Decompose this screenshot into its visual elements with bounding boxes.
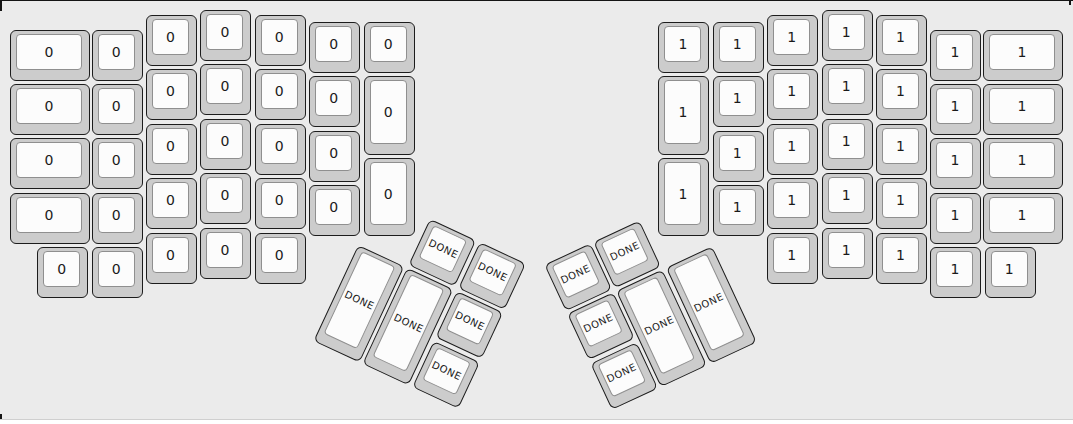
- key-label: DONE: [609, 240, 642, 262]
- key-left-3[interactable]: 0: [10, 138, 90, 189]
- key-left-28[interactable]: 0: [309, 131, 360, 182]
- key-left-19[interactable]: 0: [200, 173, 251, 224]
- keycap-top: 1: [936, 197, 973, 233]
- keycap-top: 0: [315, 135, 352, 171]
- keycap-top: 0: [16, 197, 82, 233]
- key-label: 0: [45, 208, 54, 222]
- key-label: 1: [787, 193, 796, 207]
- frame-corner-bottom-left: [0, 414, 2, 419]
- key-label: 1: [733, 146, 742, 160]
- key-right-20[interactable]: 1: [876, 124, 927, 175]
- key-right-13[interactable]: 1: [822, 10, 873, 61]
- keycap-top: 0: [206, 123, 243, 159]
- key-right-7[interactable]: 1: [713, 185, 764, 236]
- key-right-8[interactable]: 1: [767, 15, 818, 66]
- key-label: 0: [112, 99, 121, 113]
- key-right-15[interactable]: 1: [822, 119, 873, 170]
- keycap-top: 1: [882, 128, 919, 164]
- keycap-top: DONE: [551, 250, 600, 298]
- keycap-top: 1: [664, 162, 701, 225]
- keycap-top: 0: [206, 232, 243, 268]
- keycap-top: 1: [719, 80, 756, 116]
- keycap-top: 1: [989, 197, 1055, 233]
- keycap-top: 1: [989, 88, 1055, 124]
- keycap-top: 1: [936, 88, 973, 124]
- key-label: 0: [112, 153, 121, 167]
- key-left-24[interactable]: 0: [255, 178, 306, 229]
- key-label: 1: [787, 139, 796, 153]
- key-label: 0: [45, 153, 54, 167]
- key-left-25[interactable]: 0: [255, 233, 306, 284]
- key-right-2[interactable]: 1: [658, 76, 709, 154]
- keycap-top: 1: [664, 26, 701, 62]
- key-left-20[interactable]: 0: [200, 228, 251, 279]
- key-label: 1: [842, 243, 851, 257]
- keycap-top: 1: [828, 232, 865, 268]
- keycap-top: 0: [261, 182, 298, 218]
- keycap-top: 1: [936, 251, 973, 287]
- keycap-top: 1: [989, 142, 1055, 178]
- key-label: 0: [45, 99, 54, 113]
- keycap-top: 0: [43, 251, 80, 287]
- key-label: DONE: [582, 313, 615, 335]
- key-label: 0: [220, 188, 229, 202]
- key-left-1[interactable]: 0: [10, 30, 90, 81]
- frame-corner-top-right: [1069, 0, 1071, 5]
- keycap-top: 0: [315, 189, 352, 225]
- key-label: DONE: [692, 291, 725, 313]
- key-left-26[interactable]: 0: [309, 22, 360, 73]
- key-label: DONE: [643, 314, 676, 336]
- keycap-top: 1: [773, 182, 810, 218]
- key-right-12[interactable]: 1: [767, 233, 818, 284]
- keycap-top: 0: [206, 68, 243, 104]
- key-label: 0: [329, 200, 338, 214]
- key-left-4[interactable]: 0: [10, 193, 90, 244]
- keycap-top: 0: [370, 162, 407, 225]
- keycap-top: 0: [152, 73, 189, 109]
- keycap-top: 0: [315, 26, 352, 62]
- key-label: 0: [45, 45, 54, 59]
- key-label: 0: [57, 262, 66, 276]
- keycap-top: 0: [98, 142, 135, 178]
- keycap-top: 0: [98, 197, 135, 233]
- key-label: 0: [384, 187, 393, 201]
- keycap-top: 1: [882, 19, 919, 55]
- keycap-top: 0: [206, 177, 243, 213]
- key-label: 1: [678, 105, 687, 119]
- keycap-top: 1: [719, 189, 756, 225]
- key-right-24[interactable]: 1: [930, 84, 981, 135]
- key-label: 1: [842, 188, 851, 202]
- key-right-30[interactable]: 1: [983, 138, 1063, 189]
- key-label: DONE: [605, 362, 638, 384]
- key-label: 0: [112, 45, 121, 59]
- key-label: DONE: [453, 310, 486, 332]
- key-label: 1: [950, 153, 959, 167]
- keycap-top: DONE: [601, 227, 650, 275]
- key-label: 1: [733, 37, 742, 51]
- key-left-11[interactable]: 0: [146, 15, 197, 66]
- keycap-top: 0: [261, 128, 298, 164]
- keycap-top: 1: [828, 14, 865, 50]
- key-label: 1: [1018, 45, 1027, 59]
- key-left-6[interactable]: 0: [92, 30, 143, 81]
- keycap-top: 1: [773, 128, 810, 164]
- key-right-32[interactable]: 1: [985, 247, 1036, 298]
- keycap-top: 1: [828, 177, 865, 213]
- key-right-17[interactable]: 1: [822, 228, 873, 279]
- key-left-18[interactable]: 0: [200, 119, 251, 170]
- keycap-top: 1: [882, 182, 919, 218]
- keycap-top: 0: [98, 88, 135, 124]
- key-left-12[interactable]: 0: [146, 69, 197, 120]
- key-right-18[interactable]: 1: [876, 15, 927, 66]
- key-left-13[interactable]: 0: [146, 124, 197, 175]
- key-label: 1: [842, 25, 851, 39]
- key-label: 0: [220, 243, 229, 257]
- key-label: 0: [220, 79, 229, 93]
- key-label: 1: [787, 84, 796, 98]
- key-label: 0: [166, 84, 175, 98]
- key-label: 1: [1018, 153, 1027, 167]
- key-left-22[interactable]: 0: [255, 69, 306, 120]
- key-label: 1: [787, 30, 796, 44]
- keycap-top: 1: [882, 73, 919, 109]
- key-left-17[interactable]: 0: [200, 64, 251, 115]
- key-label: 0: [220, 25, 229, 39]
- keycap-top: 0: [16, 142, 82, 178]
- key-label: 1: [896, 84, 905, 98]
- keycap-top: 0: [370, 26, 407, 62]
- key-label: 0: [166, 30, 175, 44]
- keycap-top: 1: [828, 68, 865, 104]
- keycap-top: 1: [936, 34, 973, 70]
- key-left-29[interactable]: 0: [309, 185, 360, 236]
- keycap-top: DONE: [422, 347, 471, 395]
- key-label: 0: [112, 262, 121, 276]
- keycap-top: 1: [664, 80, 701, 143]
- keycap-top: 1: [773, 19, 810, 55]
- keycap-top: DONE: [574, 300, 623, 348]
- key-right-22[interactable]: 1: [876, 233, 927, 284]
- keycap-top: 1: [719, 26, 756, 62]
- key-right-10[interactable]: 1: [767, 124, 818, 175]
- key-label: 0: [329, 91, 338, 105]
- key-label: 1: [733, 91, 742, 105]
- keycap-top: 0: [261, 237, 298, 273]
- key-label: 0: [275, 248, 284, 262]
- key-right-14[interactable]: 1: [822, 64, 873, 115]
- key-right-25[interactable]: 1: [930, 138, 981, 189]
- key-label: 1: [1018, 99, 1027, 113]
- key-label: 1: [896, 139, 905, 153]
- key-label: 1: [896, 248, 905, 262]
- keycap-top: 0: [16, 88, 82, 124]
- key-right-29[interactable]: 1: [983, 84, 1063, 135]
- key-right-31[interactable]: 1: [983, 193, 1063, 244]
- key-label: 0: [275, 30, 284, 44]
- key-label: 1: [896, 193, 905, 207]
- key-left-2[interactable]: 0: [10, 84, 90, 135]
- key-label: 0: [275, 193, 284, 207]
- keycap-top: 0: [315, 80, 352, 116]
- key-label: DONE: [430, 360, 463, 382]
- key-label: 0: [384, 105, 393, 119]
- keycap-top: 0: [98, 34, 135, 70]
- key-right-5[interactable]: 1: [713, 76, 764, 127]
- key-right-26[interactable]: 1: [930, 193, 981, 244]
- key-label: 0: [112, 208, 121, 222]
- key-label: 1: [678, 187, 687, 201]
- key-left-5[interactable]: 0: [37, 247, 88, 298]
- key-label: 1: [1005, 262, 1014, 276]
- key-label: 0: [384, 37, 393, 51]
- key-left-27[interactable]: 0: [309, 76, 360, 127]
- key-label: 1: [678, 37, 687, 51]
- frame-corner-top-left: [0, 0, 2, 11]
- key-right-21[interactable]: 1: [876, 178, 927, 229]
- keycap-top: 0: [98, 251, 135, 287]
- key-label: 1: [950, 208, 959, 222]
- key-left-14[interactable]: 0: [146, 178, 197, 229]
- keyboard-configurator-panel: 0000000000000000000000000000000011111111…: [0, 0, 1073, 420]
- key-right-11[interactable]: 1: [767, 178, 818, 229]
- key-left-30[interactable]: 0: [364, 22, 415, 73]
- keycap-top: 0: [206, 14, 243, 50]
- keycap-top: 1: [828, 123, 865, 159]
- key-label: 0: [275, 139, 284, 153]
- keycap-top: 1: [991, 251, 1028, 287]
- key-right-3[interactable]: 1: [658, 158, 709, 236]
- keycap-top: 0: [370, 80, 407, 143]
- keycap-top: 0: [152, 19, 189, 55]
- key-label: 1: [787, 248, 796, 262]
- key-left-7[interactable]: 0: [92, 84, 143, 135]
- key-label: 1: [950, 262, 959, 276]
- keycap-top: 0: [261, 19, 298, 55]
- key-right-16[interactable]: 1: [822, 173, 873, 224]
- key-label: 1: [733, 200, 742, 214]
- key-label: DONE: [392, 312, 425, 334]
- keycap-top: 0: [261, 73, 298, 109]
- keycap-top: 0: [16, 34, 82, 70]
- keycap-top: DONE: [597, 349, 646, 397]
- key-right-27[interactable]: 1: [930, 247, 981, 298]
- frame-top-border: [0, 0, 1073, 1]
- key-right-9[interactable]: 1: [767, 69, 818, 120]
- key-left-31[interactable]: 0: [364, 76, 415, 154]
- key-right-4[interactable]: 1: [713, 22, 764, 73]
- keycap-top: DONE: [468, 248, 517, 296]
- key-label: 1: [950, 45, 959, 59]
- keycap-top: 1: [989, 34, 1055, 70]
- keycap-top: 1: [882, 237, 919, 273]
- keycap-top: 1: [936, 142, 973, 178]
- key-left-16[interactable]: 0: [200, 10, 251, 61]
- key-label: 0: [329, 146, 338, 160]
- key-label: 0: [275, 84, 284, 98]
- keycap-top: 0: [152, 182, 189, 218]
- key-right-6[interactable]: 1: [713, 131, 764, 182]
- key-label: 1: [896, 30, 905, 44]
- keycap-top: 0: [152, 128, 189, 164]
- keycap-top: DONE: [445, 297, 494, 345]
- key-right-1[interactable]: 1: [658, 22, 709, 73]
- key-left-23[interactable]: 0: [255, 124, 306, 175]
- key-right-23[interactable]: 1: [930, 30, 981, 81]
- key-left-10[interactable]: 0: [92, 247, 143, 298]
- key-label: 1: [842, 134, 851, 148]
- key-left-32[interactable]: 0: [364, 158, 415, 236]
- keycap-top: 0: [152, 237, 189, 273]
- keycap-top: 1: [773, 73, 810, 109]
- key-left-21[interactable]: 0: [255, 15, 306, 66]
- key-label: DONE: [559, 263, 592, 285]
- key-label: 1: [950, 99, 959, 113]
- key-left-8[interactable]: 0: [92, 138, 143, 189]
- key-label: DONE: [476, 261, 509, 283]
- key-left-15[interactable]: 0: [146, 233, 197, 284]
- key-label: 0: [166, 139, 175, 153]
- key-label: 0: [166, 248, 175, 262]
- keycap-top: 1: [773, 237, 810, 273]
- key-label: 0: [166, 193, 175, 207]
- keycap-top: 1: [719, 135, 756, 171]
- key-right-19[interactable]: 1: [876, 69, 927, 120]
- key-label: 1: [842, 79, 851, 93]
- key-label: 0: [220, 134, 229, 148]
- keyboard-layout: 0000000000000000000000000000000011111111…: [0, 0, 1073, 419]
- key-label: DONE: [343, 289, 376, 311]
- key-left-9[interactable]: 0: [92, 193, 143, 244]
- key-label: DONE: [427, 238, 460, 260]
- key-label: 1: [1018, 208, 1027, 222]
- key-label: 0: [329, 37, 338, 51]
- keycap-top: DONE: [419, 225, 468, 273]
- key-right-28[interactable]: 1: [983, 30, 1063, 81]
